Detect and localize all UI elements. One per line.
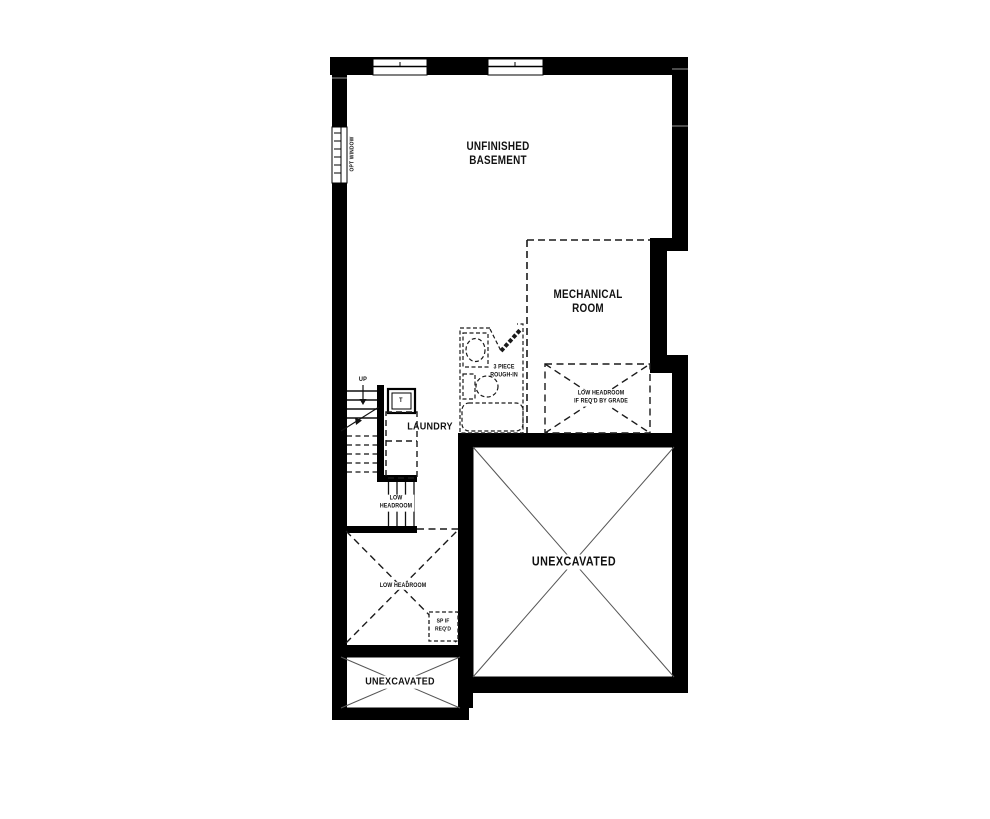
- stair-treads-solid: [347, 391, 377, 418]
- annotation-laundry-tub: T: [399, 397, 403, 405]
- wall-lowheadroom-bar: [345, 526, 417, 533]
- wall-jog-top: [650, 238, 688, 251]
- annotation-opt-window: OPT WINDOW: [350, 136, 357, 171]
- window-icon: [488, 59, 543, 75]
- basement-floor-plan: UNFINISHED BASEMENT MECHANICAL ROOM LAUN…: [0, 0, 990, 819]
- wall-bottom-left-bar: [332, 708, 469, 720]
- annotation-low-headroom-grade: LOW HEADROOM IF REQ'D BY GRADE: [572, 390, 629, 407]
- room-label-unexcavated-lower: UNEXCAVATED: [363, 676, 436, 689]
- annotation-up: UP: [359, 376, 367, 384]
- annotation-sump-pump: SP IF REQ'D: [435, 618, 451, 633]
- bathtub-icon: [462, 403, 523, 431]
- room-label-mechanical-room: MECHANICAL ROOM: [553, 289, 622, 317]
- stair-direction-arrow: [360, 385, 367, 405]
- room-label-laundry: LAUNDRY: [407, 421, 453, 434]
- wall-mid-horizontal: [458, 433, 688, 447]
- wall-right-upper: [672, 57, 688, 251]
- room-label-unfinished-basement: UNFINISHED BASEMENT: [466, 141, 529, 169]
- wall-unexcavated-bottom-bar: [458, 677, 688, 693]
- sink-icon: [463, 333, 488, 367]
- annotation-rough-in: 3 PIECE ROUGH-IN: [490, 364, 518, 381]
- wall-joint-marks: [332, 69, 688, 126]
- wall-right-jogged: [650, 251, 667, 363]
- floor-plan-linework: [0, 0, 990, 819]
- stair-treads-dashed: [347, 436, 377, 472]
- wall-stair-stringer: [377, 385, 384, 482]
- annotation-low-headroom-crawl: LOW HEADROOM: [378, 582, 428, 590]
- wall-crawl-top-bar: [332, 645, 473, 657]
- room-label-unexcavated-main: UNEXCAVATED: [530, 555, 618, 570]
- window-icon: [373, 59, 427, 75]
- vent-line-thick: [501, 329, 521, 351]
- vent-line-thin: [490, 329, 501, 351]
- annotation-low-headroom-stairs: LOW HEADROOM: [378, 495, 414, 512]
- opt-window-icon: [332, 127, 347, 183]
